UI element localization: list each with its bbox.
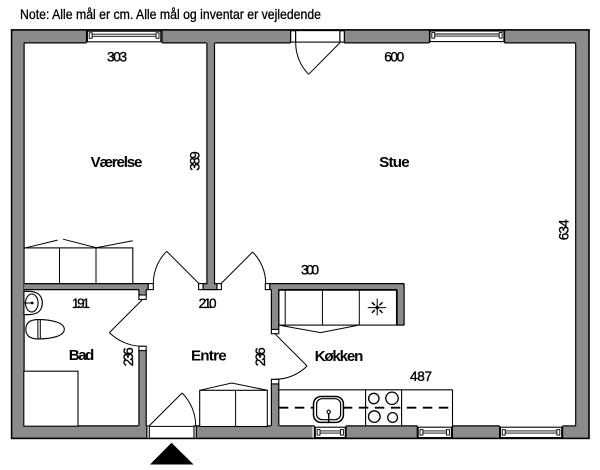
svg-text:Entre: Entre bbox=[191, 347, 227, 364]
svg-text:Note: Alle mål er cm. Alle mål: Note: Alle mål er cm. Alle mål og invent… bbox=[20, 6, 321, 22]
svg-text:Bad: Bad bbox=[69, 347, 95, 364]
svg-text:600: 600 bbox=[384, 49, 404, 64]
svg-text:236: 236 bbox=[121, 347, 136, 366]
svg-text:634: 634 bbox=[556, 219, 571, 240]
svg-text:191: 191 bbox=[72, 296, 90, 311]
svg-text:300: 300 bbox=[301, 263, 319, 278]
svg-text:Værelse: Værelse bbox=[91, 154, 143, 171]
svg-text:Køkken: Køkken bbox=[315, 348, 364, 365]
svg-text:303: 303 bbox=[107, 49, 127, 64]
svg-text:Stue: Stue bbox=[379, 154, 410, 171]
svg-text:210: 210 bbox=[199, 296, 217, 311]
svg-text:236: 236 bbox=[253, 347, 268, 366]
svg-text:389: 389 bbox=[187, 151, 202, 171]
svg-text:487: 487 bbox=[410, 369, 432, 384]
